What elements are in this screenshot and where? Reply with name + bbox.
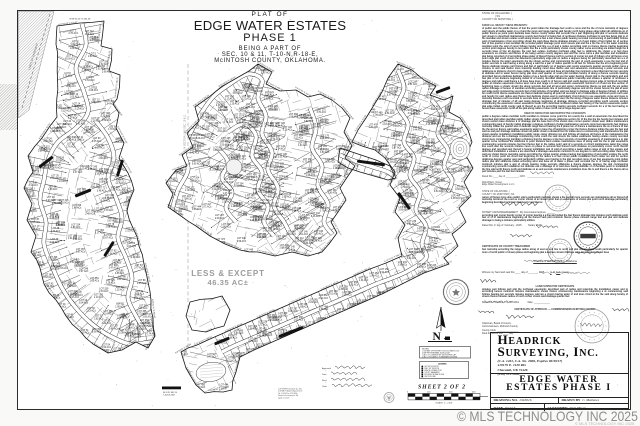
svg-text:0.76 AC±: 0.76 AC± [224,181,234,184]
svg-text:1.02 AC±: 1.02 AC± [115,289,125,292]
svg-text:46.35 AC±: 46.35 AC± [208,278,249,287]
svg-text:1.27 AC±: 1.27 AC± [61,109,71,112]
svg-text:2.65 AC±: 2.65 AC± [89,89,99,92]
svg-text:3.39 AC±: 3.39 AC± [398,263,408,266]
svg-text:2.85 AC±: 2.85 AC± [404,156,414,159]
svg-text:0.72 AC±: 0.72 AC± [263,218,273,221]
svg-text:2.56 AC±: 2.56 AC± [122,190,132,193]
svg-text:0.87 AC±: 0.87 AC± [43,165,53,168]
svg-text:1.64 AC±: 1.64 AC± [298,144,308,147]
svg-text:2.48 AC±: 2.48 AC± [48,188,58,191]
svg-text:SET 3/8" IRON PIN: SET 3/8" IRON PIN [425,366,440,368]
svg-text:1.78 AC±: 1.78 AC± [373,114,383,117]
svg-text:3.56 AC±: 3.56 AC± [406,100,416,103]
svg-text:2.32 AC±: 2.32 AC± [67,139,77,142]
svg-text:NOTES:: NOTES: [422,349,430,351]
svg-text:200: 200 [449,391,453,393]
svg-text:FENCE CORNER POST: FENCE CORNER POST [425,370,443,372]
svg-text:3.07 AC±: 3.07 AC± [237,214,247,217]
svg-text:3.40 AC±: 3.40 AC± [331,176,341,179]
svg-text:1.43 AC±: 1.43 AC± [262,230,272,233]
svg-text:1.32 AC±: 1.32 AC± [349,284,359,287]
svg-text:2.87 AC±: 2.87 AC± [246,179,256,182]
svg-text:1.07 AC±: 1.07 AC± [223,192,233,195]
svg-text:1.83 AC±: 1.83 AC± [140,322,150,325]
svg-text:1.20 AC±: 1.20 AC± [230,103,240,106]
svg-text:2.04 AC±: 2.04 AC± [431,108,441,111]
svg-text:0.97 AC±: 0.97 AC± [70,296,80,299]
svg-text:3.42 AC±: 3.42 AC± [76,122,86,125]
svg-text:2.28 AC±: 2.28 AC± [131,256,141,259]
svg-text:2.22 AC±: 2.22 AC± [190,179,200,182]
svg-text:1.73 AC±: 1.73 AC± [51,230,61,233]
svg-text:1.25 AC±: 1.25 AC± [57,306,67,309]
svg-text:3.71 AC±: 3.71 AC± [48,258,58,261]
svg-text:0.96 AC±: 0.96 AC± [109,327,119,330]
svg-text:2.05 AC±: 2.05 AC± [439,231,449,234]
svg-text:3.21 AC±: 3.21 AC± [257,235,267,238]
svg-text:2.83 AC±: 2.83 AC± [304,242,314,245]
svg-text:3.66 AC±: 3.66 AC± [417,213,427,216]
svg-text:1.01 AC±: 1.01 AC± [210,169,220,172]
svg-text:2.76 AC±: 2.76 AC± [66,145,76,148]
svg-text:1.61 AC±: 1.61 AC± [298,233,308,236]
svg-text:1.29 AC±: 1.29 AC± [231,205,241,208]
svg-text:3.63 AC±: 3.63 AC± [43,276,53,279]
svg-text:2.18 AC±: 2.18 AC± [437,133,447,136]
svg-text:1.83 AC±: 1.83 AC± [298,306,308,309]
svg-text:0.87 AC±: 0.87 AC± [103,236,113,239]
svg-text:0.84 AC±: 0.84 AC± [385,112,395,115]
svg-text:3.29 AC±: 3.29 AC± [283,128,293,131]
svg-text:3.26 AC±: 3.26 AC± [267,317,277,320]
svg-text:1.34 AC±: 1.34 AC± [369,275,379,278]
svg-text:1.03 AC±: 1.03 AC± [70,96,80,99]
svg-text:3.12 AC±: 3.12 AC± [74,108,84,111]
svg-text:3.09 AC±: 3.09 AC± [41,148,51,151]
svg-text:1.34 AC±: 1.34 AC± [245,197,255,200]
svg-text:2.21 AC±: 2.21 AC± [88,39,98,42]
svg-text:3.12 AC±: 3.12 AC± [439,128,449,131]
svg-text:2.50 AC±: 2.50 AC± [66,85,76,88]
svg-text:1.18 AC±: 1.18 AC± [289,116,299,119]
svg-text:3.24 AC±: 3.24 AC± [82,68,92,71]
svg-text:1.00 AC±: 1.00 AC± [250,121,260,124]
svg-text:1.12 AC±: 1.12 AC± [309,190,319,193]
svg-text:3.12 AC±: 3.12 AC± [293,137,303,140]
svg-text:3.70 AC±: 3.70 AC± [432,122,442,125]
svg-text:1.69 AC±: 1.69 AC± [314,233,324,236]
svg-text:1.10 AC±: 1.10 AC± [94,296,104,299]
svg-text:1.78 AC±: 1.78 AC± [209,124,219,127]
svg-text:T-10-N R-18-E: T-10-N R-18-E [163,394,175,396]
svg-text:1.54 AC±: 1.54 AC± [195,145,205,148]
svg-text:3.24 AC±: 3.24 AC± [117,317,127,320]
svg-text:3.18 AC±: 3.18 AC± [293,200,303,203]
svg-text:2.29 AC±: 2.29 AC± [308,301,318,304]
svg-text:3.03 AC±: 3.03 AC± [417,230,427,233]
svg-text:1.79 AC±: 1.79 AC± [400,186,410,189]
svg-text:SHEET 2 OF 2: SHEET 2 OF 2 [418,385,466,391]
svg-text:2.13 AC±: 2.13 AC± [86,310,96,313]
svg-text:1.35 AC±: 1.35 AC± [101,115,111,118]
svg-text:3.01 AC±: 3.01 AC± [278,156,288,159]
svg-text:1.37 AC±: 1.37 AC± [49,268,59,271]
svg-text:2.93 AC±: 2.93 AC± [393,134,403,137]
svg-text:3.06 AC±: 3.06 AC± [437,115,447,118]
svg-text:2.76 AC±: 2.76 AC± [68,32,78,35]
svg-text:0.87 AC±: 0.87 AC± [117,278,127,281]
svg-text:SECTION LINE: SECTION LINE [425,376,436,378]
svg-text:1.60 AC±: 1.60 AC± [315,205,325,208]
svg-text:1.15 AC±: 1.15 AC± [254,113,264,116]
svg-text:1.58 AC±: 1.58 AC± [258,69,268,72]
svg-text:2.80 AC±: 2.80 AC± [88,55,98,58]
svg-text:3.84 AC±: 3.84 AC± [393,124,403,127]
svg-text:0.83 AC±: 0.83 AC± [455,188,465,191]
svg-text:1.59 AC±: 1.59 AC± [85,33,95,36]
svg-text:1.32 AC±: 1.32 AC± [300,217,310,220]
svg-text:2.79 AC±: 2.79 AC± [264,125,274,128]
svg-text:2.35 AC±: 2.35 AC± [222,201,232,204]
svg-text:0.93 AC±: 0.93 AC± [431,150,441,153]
svg-text:0.91 AC±: 0.91 AC± [288,310,298,313]
svg-text:3.17 AC±: 3.17 AC± [95,232,105,235]
svg-text:3.79 AC±: 3.79 AC± [259,156,269,159]
svg-text:100: 100 [427,391,431,393]
svg-text:3.50 AC±: 3.50 AC± [320,151,330,154]
svg-text:3.08 AC±: 3.08 AC± [101,200,111,203]
svg-text:0.97 AC±: 0.97 AC± [301,116,311,119]
svg-text:1.48 AC±: 1.48 AC± [333,167,343,170]
svg-text:1.43 AC±: 1.43 AC± [50,217,60,220]
svg-text:400: 400 [472,391,476,393]
svg-text:2.76 AC±: 2.76 AC± [248,340,258,343]
svg-text:0.79 AC±: 0.79 AC± [104,209,114,212]
svg-text:1.86 AC±: 1.86 AC± [98,157,108,160]
svg-text:0.74 AC±: 0.74 AC± [253,90,263,93]
svg-text:2.04 AC±: 2.04 AC± [99,171,109,174]
svg-text:2.45 AC±: 2.45 AC± [236,136,246,139]
svg-text:2.66 AC±: 2.66 AC± [279,247,289,250]
svg-text:1.91 AC±: 1.91 AC± [68,237,78,240]
svg-text:3.86 AC±: 3.86 AC± [43,140,53,143]
svg-text:2.27 AC±: 2.27 AC± [253,219,263,222]
svg-text:1.40 AC±: 1.40 AC± [239,149,249,152]
svg-text:2.63 AC±: 2.63 AC± [85,79,95,82]
svg-text:3.27 AC±: 3.27 AC± [68,117,78,120]
svg-text:2.80 AC±: 2.80 AC± [200,115,210,118]
svg-text:2.18 AC±: 2.18 AC± [132,333,142,336]
svg-text:0.81 AC±: 0.81 AC± [286,233,296,236]
svg-text:Filed:: Filed: [322,380,327,382]
svg-text:3.21 AC±: 3.21 AC± [138,307,148,310]
svg-text:2.80 AC±: 2.80 AC± [394,153,404,156]
svg-text:2.01 AC±: 2.01 AC± [329,292,339,295]
svg-text:2.41 AC±: 2.41 AC± [399,169,409,172]
svg-text:3.77 AC±: 3.77 AC± [134,266,144,269]
svg-text:0.87 AC±: 0.87 AC± [111,189,121,192]
svg-text:2.36 AC±: 2.36 AC± [266,190,276,193]
svg-text:1.35 AC±: 1.35 AC± [339,288,349,291]
svg-text:1.89 AC±: 1.89 AC± [50,130,60,133]
svg-text:3.53 AC±: 3.53 AC± [213,149,223,152]
svg-text:2.79 AC±: 2.79 AC± [441,191,451,194]
svg-text:3.04 AC±: 3.04 AC± [108,252,118,255]
svg-text:3.17 AC±: 3.17 AC± [218,109,228,112]
svg-text:1.82 AC±: 1.82 AC± [113,221,123,224]
svg-text:2.47 AC±: 2.47 AC± [109,267,119,270]
svg-text:2.81 AC±: 2.81 AC± [414,172,424,175]
svg-text:2.04 AC±: 2.04 AC± [274,169,284,172]
svg-text:2.71 AC±: 2.71 AC± [268,195,278,198]
svg-text:1.67 AC±: 1.67 AC± [294,318,304,321]
svg-text:2.36 AC±: 2.36 AC± [94,210,104,213]
svg-text:1.19 AC±: 1.19 AC± [95,147,105,150]
svg-text:3.24 AC±: 3.24 AC± [292,210,302,213]
svg-text:N 88°51'32" E 344.28': N 88°51'32" E 344.28' [69,19,91,21]
svg-text:1.90 AC±: 1.90 AC± [407,136,417,139]
svg-text:1.23 AC±: 1.23 AC± [411,113,421,116]
svg-text:3.36 AC±: 3.36 AC± [325,161,335,164]
svg-text:1.30 AC±: 1.30 AC± [185,189,195,192]
svg-text:2.51 AC±: 2.51 AC± [408,83,418,86]
svg-text:2.09 AC±: 2.09 AC± [282,195,292,198]
svg-text:3.43 AC±: 3.43 AC± [311,215,321,218]
svg-text:1.15 AC±: 1.15 AC± [382,123,392,126]
svg-text:0.97 AC±: 0.97 AC± [392,146,402,149]
svg-text:2.33 AC±: 2.33 AC± [99,290,109,293]
svg-text:2.74 AC±: 2.74 AC± [242,166,252,169]
svg-text:0.83 AC±: 0.83 AC± [279,178,289,181]
svg-text:FND. 3/8" IRON PIN: FND. 3/8" IRON PIN [425,368,440,370]
svg-text:2.51 AC±: 2.51 AC± [217,130,227,133]
svg-text:1.75 AC±: 1.75 AC± [63,75,73,78]
svg-text:2.87 AC±: 2.87 AC± [53,107,63,110]
svg-text:1.17 AC±: 1.17 AC± [115,182,125,185]
svg-text:3.76 AC±: 3.76 AC± [253,148,263,151]
svg-text:2.05 AC±: 2.05 AC± [273,225,283,228]
svg-text:3.38 AC±: 3.38 AC± [451,197,461,200]
svg-text:1.97 AC±: 1.97 AC± [388,161,398,164]
svg-text:Date:: Date: [322,373,327,376]
svg-text:2.27 AC±: 2.27 AC± [421,249,431,252]
svg-text:1.13 AC±: 1.13 AC± [57,180,67,183]
svg-text:2.45 AC±: 2.45 AC± [253,208,263,211]
svg-text:1.21 AC±: 1.21 AC± [407,223,417,226]
svg-text:3.11 AC±: 3.11 AC± [417,266,427,269]
svg-text:2.45 AC±: 2.45 AC± [85,212,95,215]
svg-text:3.32 AC±: 3.32 AC± [178,353,188,356]
svg-text:1.74 AC±: 1.74 AC± [405,195,415,198]
svg-text:2.09 AC±: 2.09 AC± [50,241,60,244]
svg-text:3.03 AC±: 3.03 AC± [264,98,274,101]
svg-text:1.19 AC±: 1.19 AC± [318,181,328,184]
svg-text:1.05 AC±: 1.05 AC± [200,128,210,131]
svg-text:2.59 AC±: 2.59 AC± [102,119,112,122]
svg-text:1.56 AC±: 1.56 AC± [237,240,247,243]
svg-text:3.80 AC±: 3.80 AC± [304,120,314,123]
svg-text:1.70 AC±: 1.70 AC± [55,224,65,227]
svg-text:1.40 AC±: 1.40 AC± [424,97,434,100]
svg-text:SCALE: 1" = 200': SCALE: 1" = 200' [436,402,454,405]
svg-text:0.75 AC±: 0.75 AC± [137,313,147,316]
svg-text:3.71 AC±: 3.71 AC± [258,323,268,326]
svg-text:1.55 AC±: 1.55 AC± [137,282,147,285]
svg-text:1.62 AC±: 1.62 AC± [126,326,136,329]
svg-text:2.31 AC±: 2.31 AC± [131,336,141,339]
svg-text:3.04 AC±: 3.04 AC± [318,297,328,300]
svg-text:2.08 AC±: 2.08 AC± [215,217,225,220]
svg-text:1.34 AC±: 1.34 AC± [359,279,369,282]
svg-text:2.57 AC±: 2.57 AC± [260,142,270,145]
svg-text:3.39 AC±: 3.39 AC± [311,126,321,129]
svg-text:2.08 AC±: 2.08 AC± [106,226,116,229]
svg-text:2.74 AC±: 2.74 AC± [233,177,243,180]
svg-text:3.56 AC±: 3.56 AC± [91,101,101,104]
svg-text:2.97 AC±: 2.97 AC± [424,169,434,172]
svg-text:3.17 AC±: 3.17 AC± [399,109,409,112]
svg-text:1.59 AC±: 1.59 AC± [416,151,426,154]
svg-text:3.29 AC±: 3.29 AC± [106,281,116,284]
svg-text:2.34 AC±: 2.34 AC± [213,186,223,189]
svg-text:3.87 AC±: 3.87 AC± [76,251,86,254]
svg-text:3.37 AC±: 3.37 AC± [73,171,83,174]
svg-text:LEGEND: LEGEND [438,363,447,365]
svg-text:1.67 AC±: 1.67 AC± [232,92,242,95]
svg-text:rights reserved: rights reserved [278,396,289,399]
svg-text:1.71 AC±: 1.71 AC± [182,198,192,201]
svg-text:2.83 AC±: 2.83 AC± [276,238,286,241]
svg-text:2.88 AC±: 2.88 AC± [115,272,125,275]
svg-text:1.37 AC±: 1.37 AC± [174,172,184,175]
svg-text:2.94 AC±: 2.94 AC± [380,271,390,274]
svg-text:1.15 AC±: 1.15 AC± [368,126,378,129]
svg-text:1.77 AC±: 1.77 AC± [62,283,72,286]
svg-text:3.76 AC±: 3.76 AC± [316,111,326,114]
svg-text:0.70 AC±: 0.70 AC± [224,121,234,124]
svg-text:1.89 AC±: 1.89 AC± [420,148,430,151]
svg-text:1.06 AC±: 1.06 AC± [249,126,259,129]
svg-text:3.43 AC±: 3.43 AC± [190,152,200,155]
svg-text:2.51 AC±: 2.51 AC± [342,294,352,297]
svg-text:2.44 AC±: 2.44 AC± [320,137,330,140]
svg-text:3.57 AC±: 3.57 AC± [55,159,65,162]
svg-text:0.96 AC±: 0.96 AC± [434,164,444,167]
svg-text:3.48 AC±: 3.48 AC± [97,189,107,192]
svg-text:3.05 AC±: 3.05 AC± [134,297,144,300]
svg-text:Clerk:: Clerk: [322,386,328,388]
svg-text:1.10 AC±: 1.10 AC± [208,117,218,120]
svg-text:1.75 AC±: 1.75 AC± [75,139,85,142]
svg-text:3.11 AC±: 3.11 AC± [28,184,38,187]
svg-text:3.04 AC±: 3.04 AC± [429,240,439,243]
svg-text:2.10 AC±: 2.10 AC± [272,213,282,216]
svg-text:3.26 AC±: 3.26 AC± [426,145,436,148]
svg-text:0: 0 [407,391,409,393]
svg-text:1.56 AC±: 1.56 AC± [88,168,98,171]
svg-text:1.84 AC±: 1.84 AC± [70,47,80,50]
svg-text:2.58 AC±: 2.58 AC± [319,308,329,311]
svg-text:1.16 AC±: 1.16 AC± [103,312,113,315]
svg-text:2.50 AC±: 2.50 AC± [205,136,215,139]
svg-text:3.08 AC±: 3.08 AC± [92,330,102,333]
svg-text:3.00 AC±: 3.00 AC± [411,142,421,145]
svg-text:3.16 AC±: 3.16 AC± [268,109,278,112]
svg-text:3.41 AC±: 3.41 AC± [406,257,416,260]
svg-text:3.44 AC±: 3.44 AC± [413,129,423,132]
svg-text:3.54 AC±: 3.54 AC± [79,302,89,305]
svg-text:1.53 AC±: 1.53 AC± [96,68,106,71]
svg-text:3.09 AC±: 3.09 AC± [398,208,408,211]
svg-text:3.19 AC±: 3.19 AC± [65,57,75,60]
svg-text:2.14 AC±: 2.14 AC± [276,148,286,151]
svg-text:2.54 AC±: 2.54 AC± [201,164,211,167]
svg-text:1.63 AC±: 1.63 AC± [239,110,249,113]
svg-text:2.66 AC±: 2.66 AC± [435,180,445,183]
svg-text:3.05 AC±: 3.05 AC± [142,316,152,319]
svg-text:1.64 AC±: 1.64 AC± [445,171,455,174]
svg-text:1.86 AC±: 1.86 AC± [71,226,81,229]
svg-text:1.07 AC±: 1.07 AC± [79,270,89,273]
svg-text:3.15 AC±: 3.15 AC± [294,240,304,243]
svg-text:2.80 AC±: 2.80 AC± [221,226,231,229]
svg-text:2.12 AC±: 2.12 AC± [295,227,305,230]
svg-text:1.09 AC±: 1.09 AC± [99,181,109,184]
svg-text:1.67 AC±: 1.67 AC± [387,94,397,97]
svg-text:2.44 AC±: 2.44 AC± [263,334,273,337]
svg-text:3.79 AC±: 3.79 AC± [271,138,281,141]
svg-text:3.27 AC±: 3.27 AC± [241,97,251,100]
svg-text:1.78 AC±: 1.78 AC± [52,202,62,205]
svg-text:3.18 AC±: 3.18 AC± [245,89,255,92]
svg-text:1.18 AC±: 1.18 AC± [271,228,281,231]
svg-text:1.69 AC±: 1.69 AC± [264,165,274,168]
svg-text:0.96 AC±: 0.96 AC± [57,126,67,129]
svg-text:1.03 AC±: 1.03 AC± [85,131,95,134]
svg-text:3.47 AC±: 3.47 AC± [243,115,253,118]
svg-text:2.98 AC±: 2.98 AC± [72,207,82,210]
svg-text:2.38 AC±: 2.38 AC± [420,182,430,185]
svg-text:2.00 AC±: 2.00 AC± [90,279,100,282]
svg-text:2.11 AC±: 2.11 AC± [395,68,405,71]
svg-text:1.72 AC±: 1.72 AC± [90,120,100,123]
svg-text:0.79 AC±: 0.79 AC± [320,210,330,213]
svg-text:1.77 AC±: 1.77 AC± [306,174,316,177]
svg-text:0.72 AC±: 0.72 AC± [303,161,313,164]
svg-text:3.14 AC±: 3.14 AC± [175,203,185,206]
svg-text:Approved:: Approved: [322,367,332,370]
svg-text:3.17 AC±: 3.17 AC± [408,95,418,98]
svg-text:2.53 AC±: 2.53 AC± [220,143,230,146]
svg-text:1.95 AC±: 1.95 AC± [115,305,125,308]
svg-text:3.71 AC±: 3.71 AC± [202,205,212,208]
svg-text:1.36 AC±: 1.36 AC± [327,192,337,195]
svg-text:2.25 AC±: 2.25 AC± [225,147,235,150]
svg-text:1.23 AC±: 1.23 AC± [192,208,202,211]
svg-text:3.36 AC±: 3.36 AC± [64,93,74,96]
svg-text:1.56 AC±: 1.56 AC± [105,197,115,200]
svg-text:1.28 AC±: 1.28 AC± [253,191,263,194]
svg-text:3.52 AC±: 3.52 AC± [51,265,61,268]
svg-text:2.37 AC±: 2.37 AC± [269,205,279,208]
svg-text:1.64 AC±: 1.64 AC± [127,245,137,248]
svg-text:2.09 AC±: 2.09 AC± [237,122,247,125]
svg-text:3.39 AC±: 3.39 AC± [234,185,244,188]
svg-text:3.03 AC±: 3.03 AC± [234,332,244,335]
svg-text:3.81 AC±: 3.81 AC± [452,130,462,133]
svg-text:1.76 AC±: 1.76 AC± [313,239,323,242]
